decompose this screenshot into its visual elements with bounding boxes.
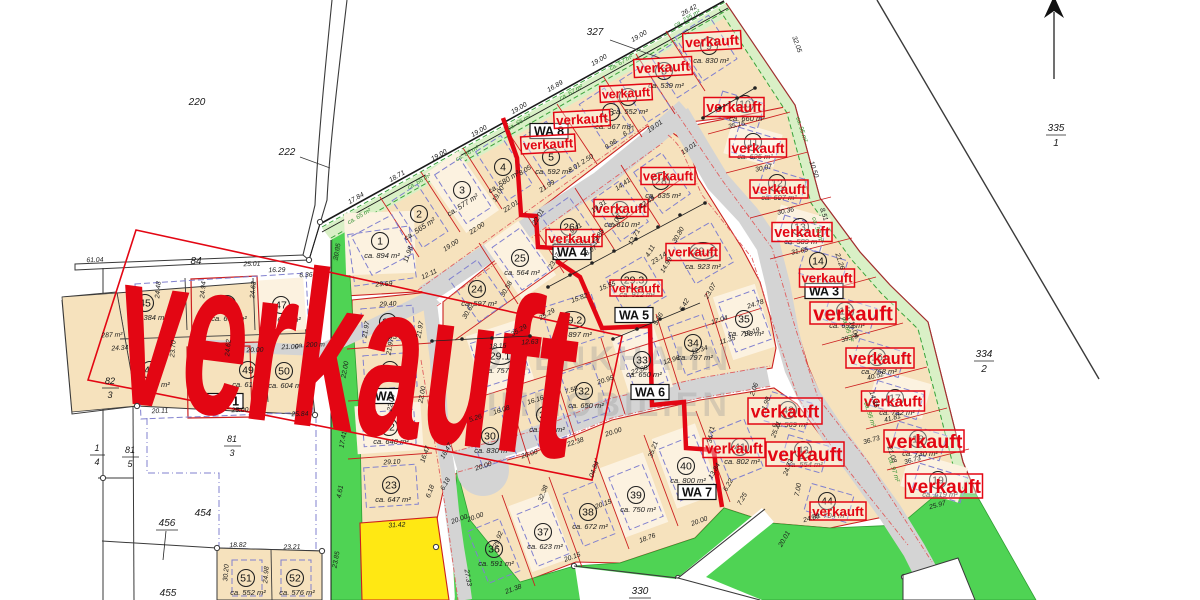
svg-text:1: 1: [94, 443, 99, 453]
svg-text:ca. 802 m²: ca. 802 m²: [724, 457, 760, 466]
svg-text:20.11: 20.11: [151, 408, 169, 416]
svg-text:ca. 650 m²: ca. 650 m²: [568, 401, 604, 410]
svg-text:verkauft: verkauft: [767, 445, 843, 466]
svg-text:25.84: 25.84: [290, 411, 308, 419]
svg-text:verkauft: verkauft: [907, 477, 982, 498]
svg-text:16.29: 16.29: [268, 267, 285, 275]
svg-text:29.10: 29.10: [382, 459, 401, 467]
svg-text:3: 3: [459, 185, 465, 197]
svg-text:455: 455: [160, 588, 177, 599]
svg-text:ca. 200 m: ca. 200 m: [295, 341, 325, 349]
svg-text:ca. 800 m²: ca. 800 m²: [670, 476, 706, 485]
svg-text:ca. 750 m²: ca. 750 m²: [620, 505, 656, 514]
svg-text:verkauft: verkauft: [886, 431, 963, 453]
svg-text:12.63: 12.63: [521, 339, 539, 347]
svg-text:ca. 830 m²: ca. 830 m²: [693, 56, 729, 65]
svg-text:335: 335: [1048, 123, 1065, 134]
svg-text:330: 330: [632, 586, 649, 597]
svg-text:81: 81: [125, 445, 135, 455]
svg-text:1: 1: [1053, 138, 1059, 149]
svg-text:456: 456: [159, 518, 176, 529]
svg-text:4: 4: [500, 162, 506, 174]
svg-text:2: 2: [980, 364, 987, 375]
svg-text:verkauft: verkauft: [668, 245, 719, 260]
svg-text:14: 14: [812, 256, 824, 268]
svg-text:29.40: 29.40: [378, 301, 397, 309]
svg-text:3: 3: [229, 448, 234, 458]
svg-text:23.21: 23.21: [282, 544, 300, 552]
svg-text:30.20: 30.20: [222, 564, 230, 582]
svg-text:ca. 672 m²: ca. 672 m²: [572, 522, 608, 531]
svg-text:verkauft: verkauft: [812, 504, 864, 519]
svg-text:verkauft: verkauft: [556, 110, 609, 128]
svg-text:24.34: 24.34: [110, 345, 129, 353]
svg-text:82: 82: [105, 376, 115, 386]
svg-text:84: 84: [190, 256, 202, 267]
svg-text:verkauft: verkauft: [705, 441, 763, 457]
svg-text:WA 7: WA 7: [682, 485, 712, 499]
svg-text:verkauft: verkauft: [602, 85, 651, 102]
svg-text:ca. 592 m²: ca. 592 m²: [535, 167, 571, 176]
svg-text:454: 454: [195, 508, 212, 519]
svg-text:81: 81: [227, 434, 237, 444]
svg-text:52: 52: [289, 573, 301, 585]
svg-text:ca. 552 m²: ca. 552 m²: [230, 588, 266, 597]
svg-text:verkauft: verkauft: [706, 100, 762, 116]
svg-text:39: 39: [630, 490, 642, 502]
svg-text:2: 2: [416, 209, 422, 221]
svg-text:32: 32: [578, 386, 590, 398]
svg-text:5: 5: [548, 152, 554, 164]
svg-text:327: 327: [587, 27, 604, 38]
svg-text:verkauft: verkauft: [523, 135, 575, 153]
svg-text:220: 220: [188, 97, 206, 108]
svg-text:40: 40: [680, 461, 692, 473]
svg-text:334: 334: [976, 349, 993, 360]
svg-text:29.69: 29.69: [374, 281, 393, 289]
svg-text:37: 37: [537, 527, 549, 539]
svg-text:35: 35: [738, 314, 750, 326]
svg-text:WA 6: WA 6: [635, 385, 665, 399]
svg-text:20.00: 20.00: [245, 347, 263, 355]
svg-text:ca. 576 m²: ca. 576 m²: [279, 588, 315, 597]
svg-text:WA 5: WA 5: [619, 308, 649, 322]
svg-text:21.00: 21.00: [280, 344, 298, 352]
svg-text:verkauft: verkauft: [751, 401, 820, 421]
svg-text:222: 222: [278, 147, 296, 158]
svg-text:25.01: 25.01: [242, 261, 260, 269]
svg-text:ca. 591 m²: ca. 591 m²: [478, 559, 514, 568]
svg-text:3: 3: [107, 390, 112, 400]
svg-text:4: 4: [94, 457, 99, 467]
svg-text:verkauft: verkauft: [849, 350, 913, 368]
svg-text:287 m²: 287 m²: [100, 332, 123, 340]
svg-text:verkauft: verkauft: [643, 169, 694, 184]
svg-text:verkauft: verkauft: [802, 271, 854, 286]
svg-text:ca. 552 m²: ca. 552 m²: [612, 107, 648, 116]
svg-text:6.36: 6.36: [299, 272, 313, 279]
svg-text:verkauft: verkauft: [612, 281, 660, 295]
svg-text:25.00: 25.00: [230, 407, 248, 415]
svg-text:51: 51: [240, 573, 252, 585]
svg-text:ca. 923 m²: ca. 923 m²: [685, 262, 721, 271]
svg-text:18.15: 18.15: [489, 343, 507, 351]
svg-text:31.42: 31.42: [388, 522, 406, 530]
svg-text:18.82: 18.82: [229, 542, 246, 550]
svg-text:61.04: 61.04: [86, 257, 103, 265]
svg-text:ca. 539 m²: ca. 539 m²: [648, 81, 684, 90]
svg-text:verkauft: verkauft: [752, 182, 806, 197]
svg-text:38: 38: [582, 507, 594, 519]
svg-text:verkauft: verkauft: [732, 141, 785, 156]
svg-text:verkauft: verkauft: [685, 33, 740, 51]
svg-text:ca. 623 m²: ca. 623 m²: [527, 542, 563, 551]
svg-text:ca. 647 m²: ca. 647 m²: [375, 495, 411, 504]
svg-text:verkauft: verkauft: [636, 59, 691, 77]
